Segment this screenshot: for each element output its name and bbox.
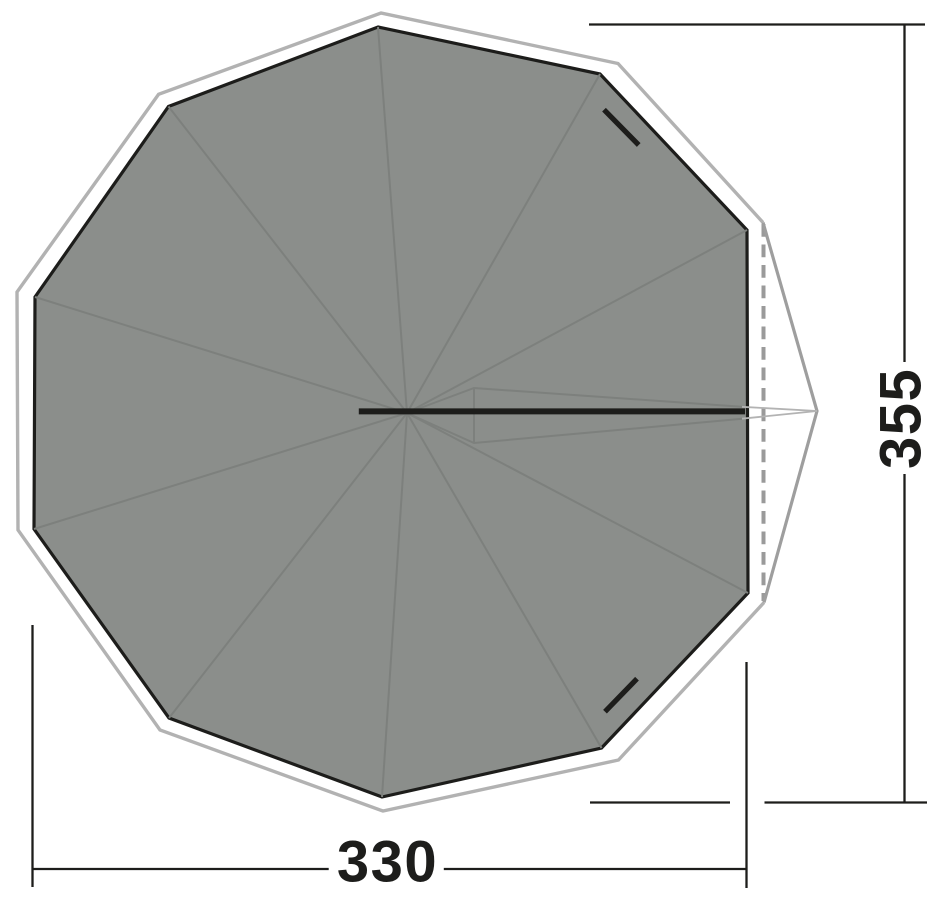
svg-text:355: 355	[869, 368, 934, 469]
svg-text:330: 330	[337, 830, 438, 895]
